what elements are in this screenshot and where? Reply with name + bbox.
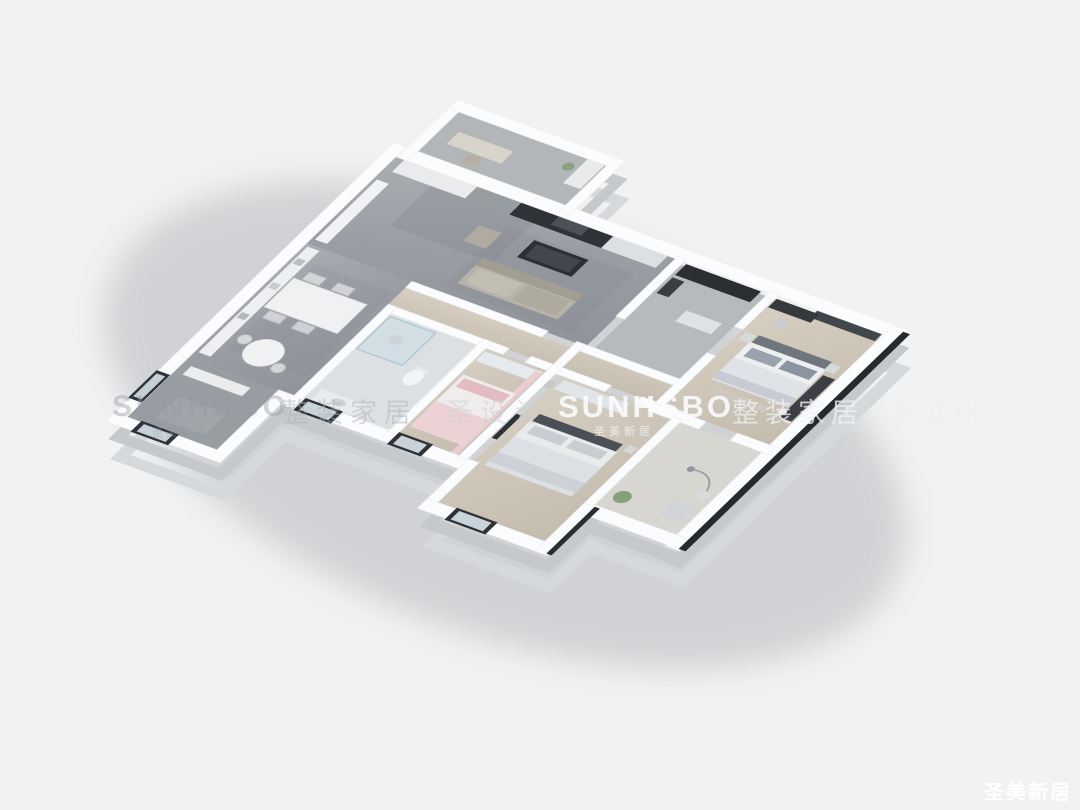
floorplan-render-canvas: SUNHSBO 圣美新居 整装家居 圣设计 SUNHSBO 圣美新居 整装家居 … (0, 0, 1080, 810)
apartment-3d-floorplan (0, 0, 1080, 810)
